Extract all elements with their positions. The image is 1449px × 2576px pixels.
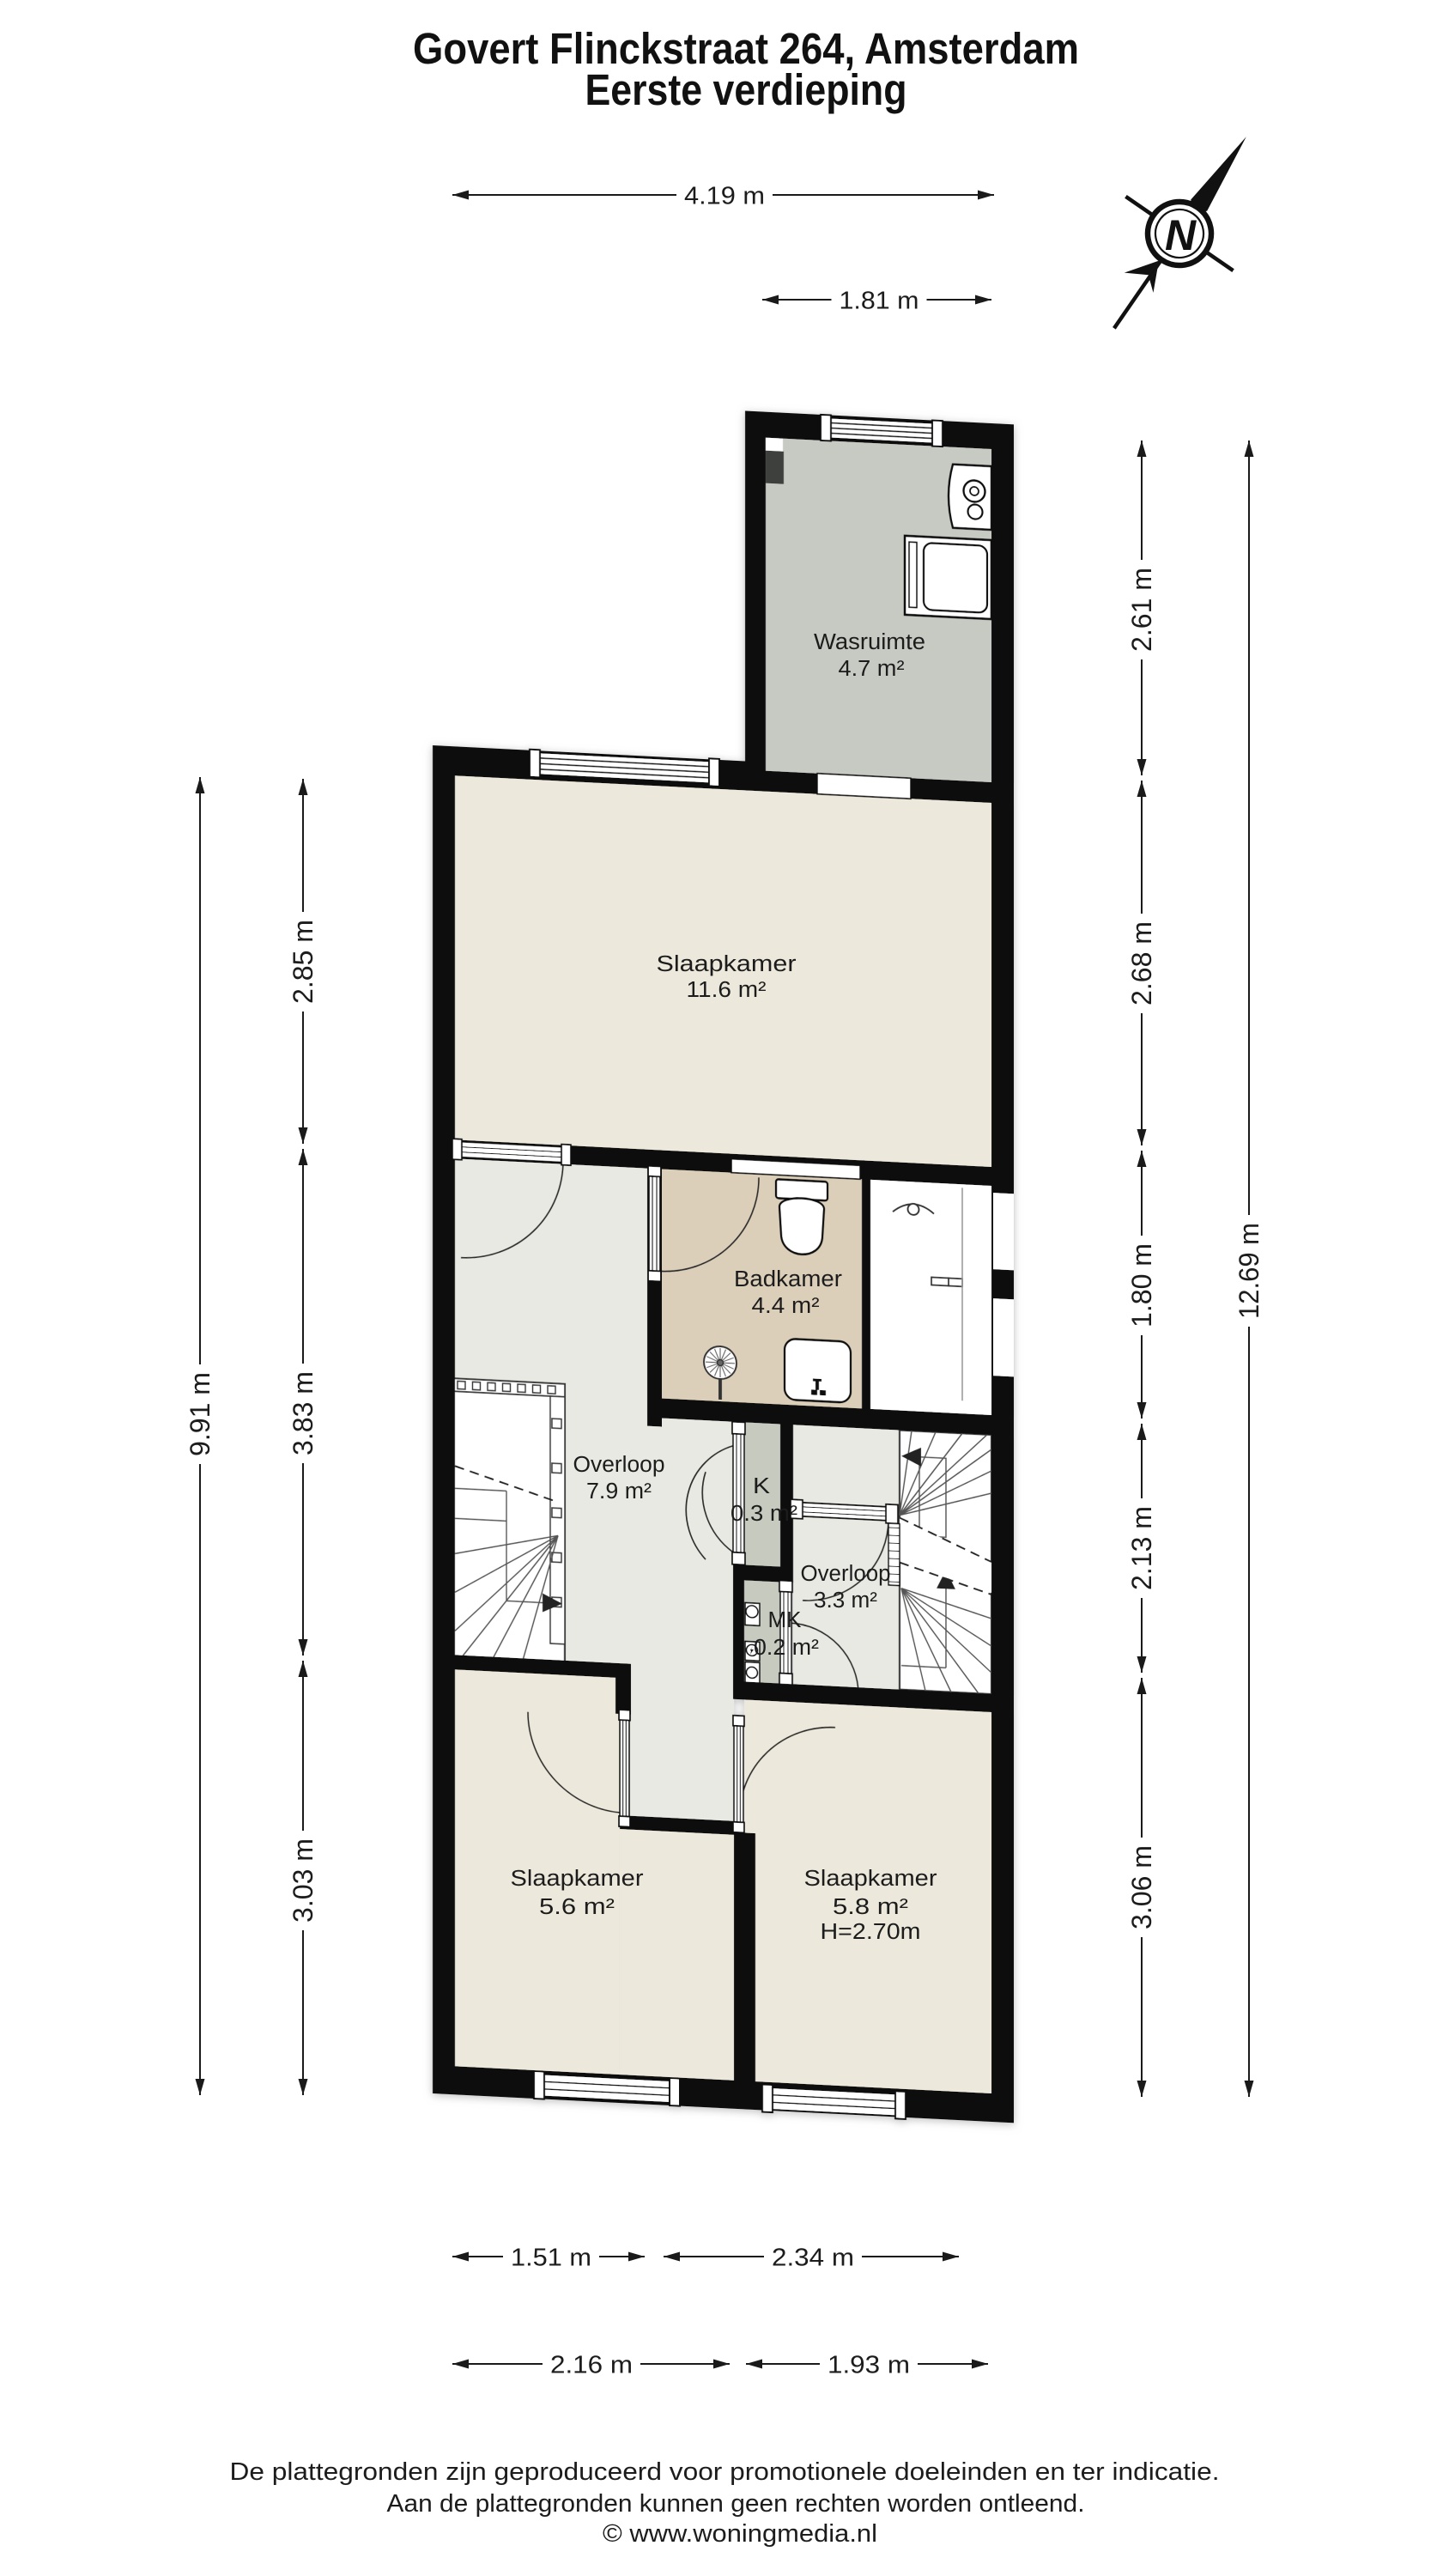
svg-text:H=2.70m: H=2.70m xyxy=(821,1920,921,1944)
svg-text:2.13 m: 2.13 m xyxy=(1126,1506,1157,1590)
svg-text:9.91 m: 9.91 m xyxy=(185,1372,215,1456)
svg-text:1.93 m: 1.93 m xyxy=(828,2352,910,2379)
svg-text:11.6 m²: 11.6 m² xyxy=(687,978,767,1002)
svg-text:3.03 m: 3.03 m xyxy=(288,1838,318,1923)
svg-text:Overloop: Overloop xyxy=(573,1453,665,1477)
svg-text:De plattegronden zijn geproduc: De plattegronden zijn geproduceerd voor … xyxy=(230,2458,1220,2486)
svg-text:5.6 m²: 5.6 m² xyxy=(539,1895,615,1919)
svg-text:Wasruimte: Wasruimte xyxy=(814,630,925,654)
svg-text:K: K xyxy=(753,1474,770,1498)
svg-text:4.4 m²: 4.4 m² xyxy=(752,1294,820,1318)
svg-text:7.9 m²: 7.9 m² xyxy=(586,1479,652,1504)
svg-text:1.81 m: 1.81 m xyxy=(840,288,919,315)
svg-text:12.69 m: 12.69 m xyxy=(1234,1223,1264,1319)
svg-text:Overloop: Overloop xyxy=(801,1562,891,1586)
svg-text:Eerste verdieping: Eerste verdieping xyxy=(585,65,907,114)
svg-text:Badkamer: Badkamer xyxy=(734,1267,843,1291)
svg-text:2.68 m: 2.68 m xyxy=(1126,921,1157,1005)
svg-text:5.8 m²: 5.8 m² xyxy=(833,1895,908,1919)
svg-text:Slaapkamer: Slaapkamer xyxy=(657,952,797,976)
svg-text:© www.woningmedia.nl: © www.woningmedia.nl xyxy=(603,2520,877,2548)
svg-text:4.19 m: 4.19 m xyxy=(684,183,765,210)
svg-text:2.61 m: 2.61 m xyxy=(1126,568,1157,652)
svg-text:Aan de plattegronden kunnen ge: Aan de plattegronden kunnen geen rechten… xyxy=(387,2490,1085,2518)
svg-text:4.7 m²: 4.7 m² xyxy=(839,657,905,681)
svg-text:Slaapkamer: Slaapkamer xyxy=(804,1867,938,1891)
svg-text:3.83 m: 3.83 m xyxy=(288,1371,318,1455)
svg-text:3.06 m: 3.06 m xyxy=(1126,1845,1157,1929)
svg-text:3.3 m²: 3.3 m² xyxy=(814,1589,877,1613)
svg-text:N: N xyxy=(1165,211,1197,259)
svg-text:Slaapkamer: Slaapkamer xyxy=(511,1867,645,1891)
svg-text:2.85 m: 2.85 m xyxy=(288,920,318,1004)
svg-text:1.80 m: 1.80 m xyxy=(1126,1243,1157,1327)
svg-text:MK: MK xyxy=(768,1608,802,1632)
svg-text:0.3 m²: 0.3 m² xyxy=(731,1502,797,1526)
svg-text:2.16 m: 2.16 m xyxy=(550,2352,633,2379)
svg-text:1.51 m: 1.51 m xyxy=(511,2245,591,2272)
svg-text:0.2 m²: 0.2 m² xyxy=(754,1636,819,1660)
svg-text:2.34 m: 2.34 m xyxy=(772,2245,854,2272)
